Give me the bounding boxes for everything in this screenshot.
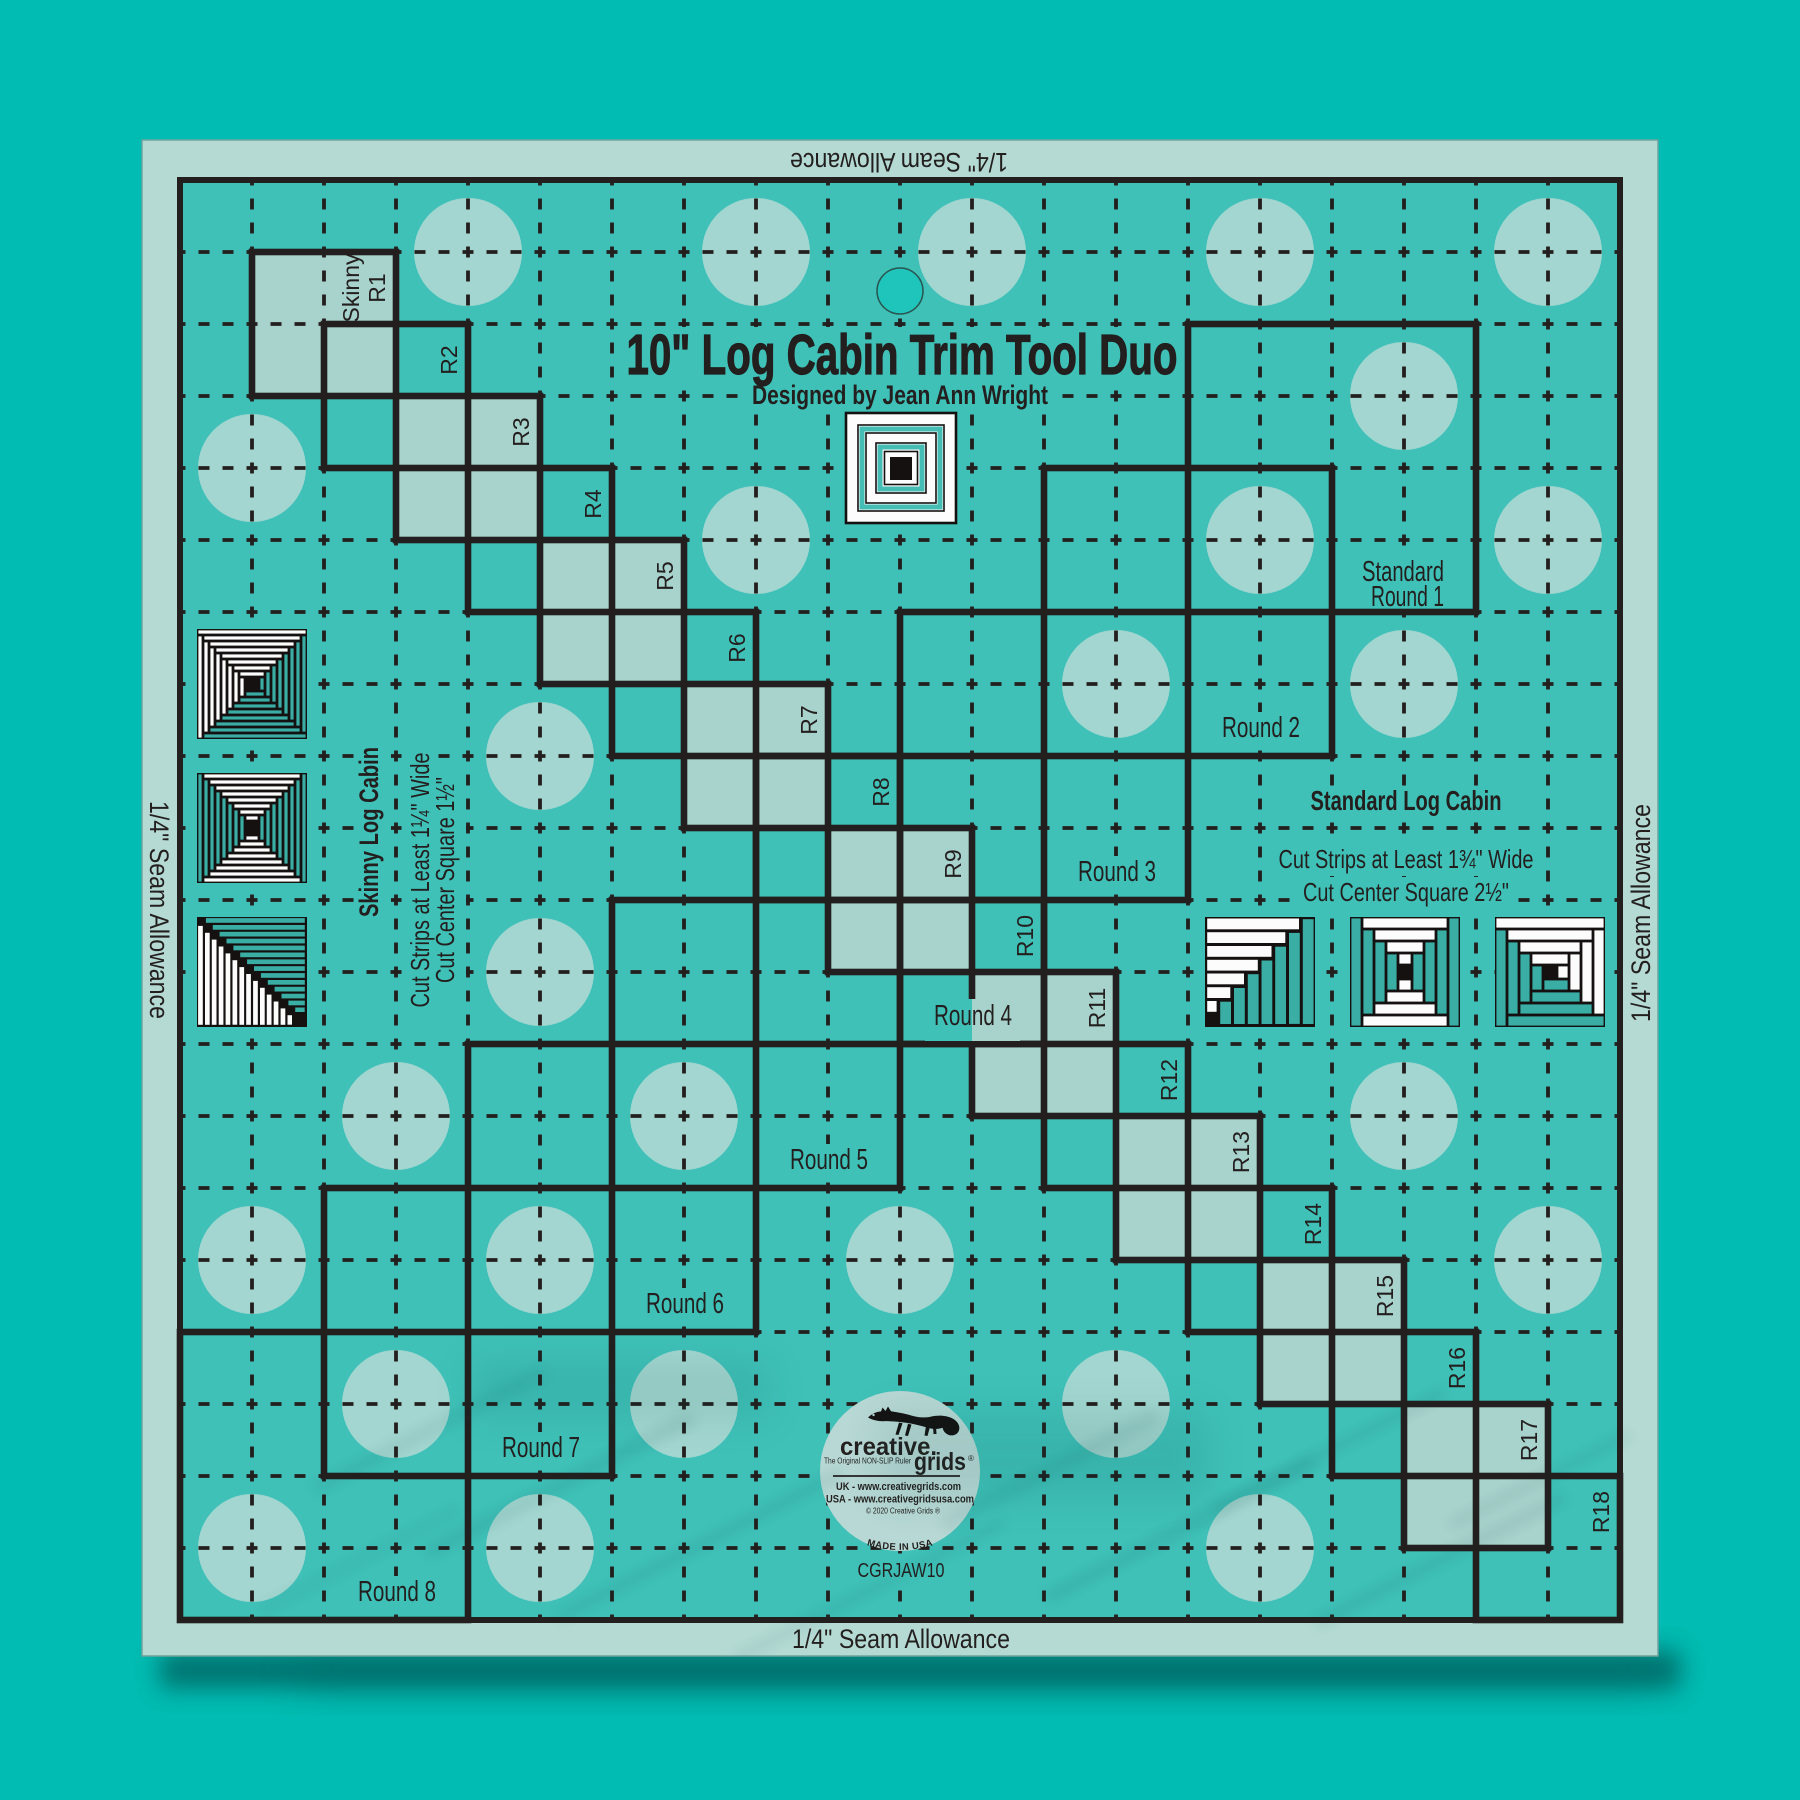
svg-text:R16: R16 <box>1444 1347 1470 1389</box>
svg-text:R2: R2 <box>436 345 462 374</box>
svg-text:Skinny: Skinny <box>338 253 364 323</box>
svg-text:Designed by Jean Ann Wright: Designed by Jean Ann Wright <box>752 380 1048 410</box>
svg-text:R11: R11 <box>1084 988 1110 1029</box>
svg-text:R15: R15 <box>1372 1275 1398 1317</box>
svg-text:Round 3: Round 3 <box>1078 856 1156 888</box>
svg-text:Cut Center Square 2½": Cut Center Square 2½" <box>1303 877 1509 907</box>
svg-text:1/4" Seam Allowance: 1/4" Seam Allowance <box>792 1624 1010 1654</box>
svg-text:10" Log Cabin Trim Tool Duo: 10" Log Cabin Trim Tool Duo <box>627 323 1178 387</box>
svg-text:R4: R4 <box>580 489 606 519</box>
svg-text:Round 7: Round 7 <box>502 1432 580 1464</box>
svg-text:R8: R8 <box>868 777 894 806</box>
svg-text:R6: R6 <box>724 633 750 662</box>
svg-text:R12: R12 <box>1156 1059 1182 1101</box>
svg-text:R10: R10 <box>1012 915 1038 957</box>
svg-text:Round 1: Round 1 <box>1371 581 1444 613</box>
svg-text:Round 5: Round 5 <box>790 1144 868 1176</box>
svg-text:R17: R17 <box>1516 1419 1542 1461</box>
svg-text:Standard Log Cabin: Standard Log Cabin <box>1311 785 1502 816</box>
svg-text:Round 4: Round 4 <box>934 1000 1012 1032</box>
svg-text:1/4" Seam Allowance: 1/4" Seam Allowance <box>790 147 1008 177</box>
svg-text:Round 8: Round 8 <box>358 1576 436 1608</box>
svg-text:Cut Center Square 1½": Cut Center Square 1½" <box>430 777 460 983</box>
svg-text:R14: R14 <box>1300 1203 1326 1245</box>
svg-text:R18: R18 <box>1588 1491 1614 1533</box>
svg-text:1/4" Seam Allowance: 1/4" Seam Allowance <box>1626 804 1656 1022</box>
svg-text:R3: R3 <box>508 417 534 446</box>
svg-text:Skinny Log Cabin: Skinny Log Cabin <box>354 747 384 917</box>
svg-text:Round 6: Round 6 <box>646 1288 724 1320</box>
svg-text:© 2020 Creative Grids ®: © 2020 Creative Grids ® <box>866 1507 940 1516</box>
svg-text:Round 2: Round 2 <box>1222 712 1300 744</box>
svg-text:R1: R1 <box>364 273 390 302</box>
svg-text:R5: R5 <box>652 561 678 590</box>
svg-text:Cut Strips at Least 1¾" Wide: Cut Strips at Least 1¾" Wide <box>1279 844 1534 874</box>
svg-text:R9: R9 <box>940 849 966 878</box>
svg-text:1/4" Seam Allowance: 1/4" Seam Allowance <box>144 801 174 1019</box>
svg-text:R13: R13 <box>1228 1131 1254 1173</box>
svg-text:R7: R7 <box>796 705 822 734</box>
